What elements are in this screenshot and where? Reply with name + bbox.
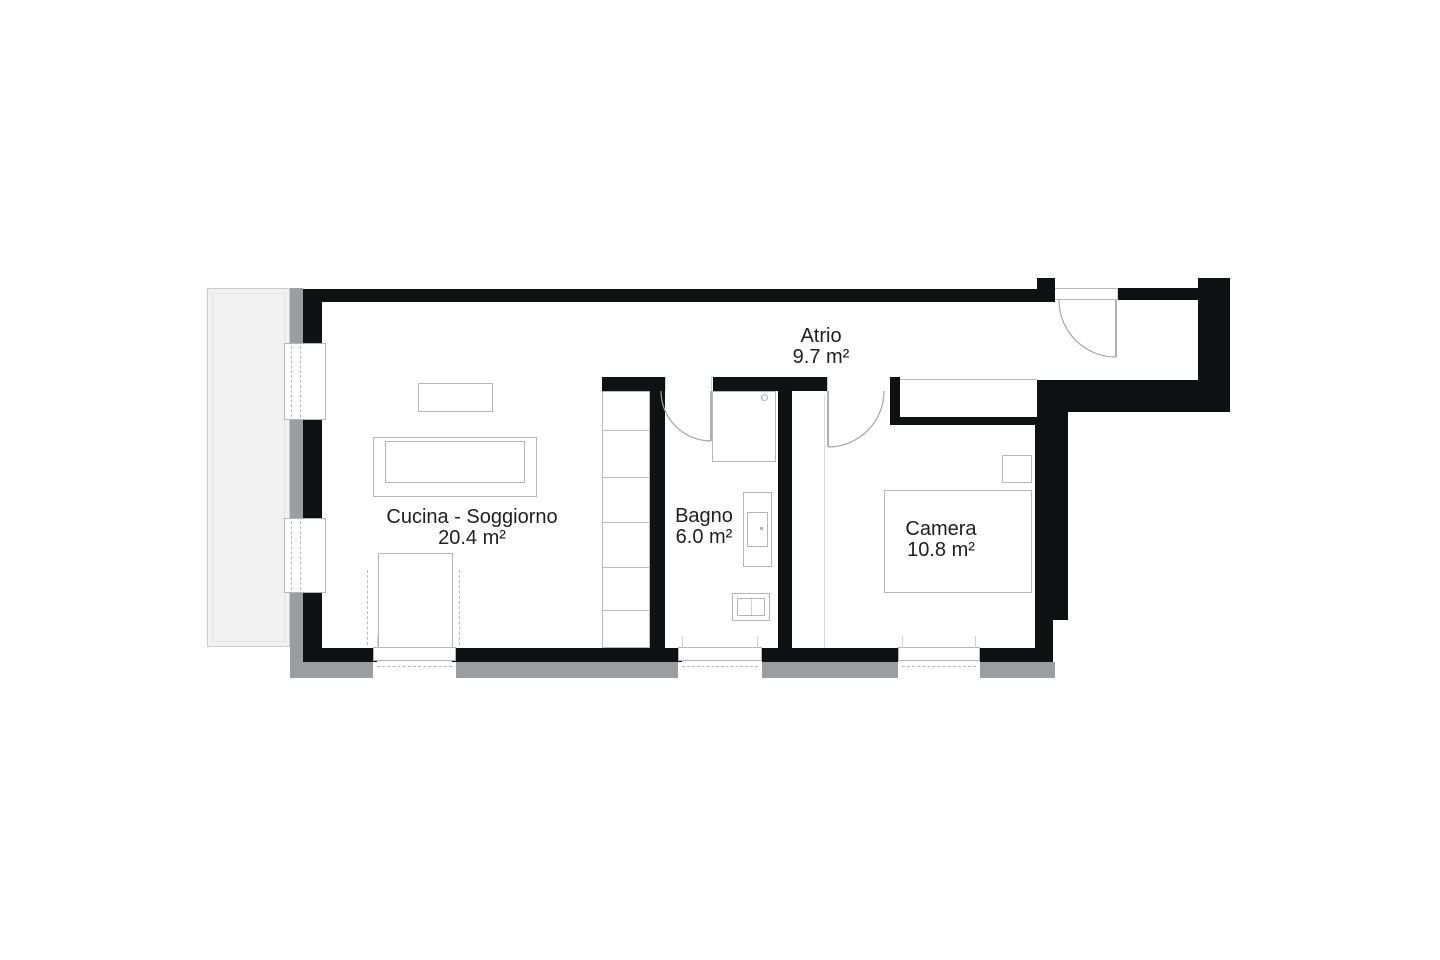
entry-door-arc [1059,300,1116,357]
wall-camera-right-upper [1035,412,1068,620]
room-label-bagno: Bagno 6.0 m² [624,506,784,548]
door-jamb-line [827,377,828,391]
outer-band-bottom [762,662,898,678]
wall-camera-top [900,417,1037,425]
door-jamb-line [665,377,666,391]
wall-left-seg2 [303,420,322,518]
wall-top-stub [1037,278,1055,291]
toilet-line [751,599,752,615]
balcony [207,288,290,647]
wall-right-corner [1198,278,1230,412]
room-name: Camera [841,519,1041,540]
kitchen-dash-line [367,570,368,645]
outer-band-bottom [980,662,1055,678]
wall-bottom-1 [452,648,682,662]
wall-face-line [824,395,825,648]
wall-left-seg1 [303,289,322,343]
wall-top-right [1118,288,1198,300]
window-pane-line [300,521,301,590]
nightstand [1002,455,1032,483]
window-reveal-line [975,636,976,648]
room-label-camera: Camera 10.8 m² [841,519,1041,561]
outer-band-bottom [303,662,373,678]
door-jamb-line [1117,288,1118,300]
hall-niche [900,379,1037,417]
room-name: Bagno [624,506,784,527]
wall-entry-band [1035,380,1198,412]
kitchen-block [378,553,453,648]
window-pane-line [902,666,976,667]
window-pane-line [300,346,301,417]
room-name: Atrio [721,326,921,347]
wall-bagno-top [713,377,827,391]
wall-wardrobe-stub [602,377,665,391]
camera-door-arc [828,391,884,447]
window-reveal-line [682,636,683,648]
wardrobe-shelf-line [603,477,649,478]
window [678,647,762,661]
room-label-atrio: Atrio 9.7 m² [721,326,921,368]
kitchen-dash-line [459,570,460,645]
door-jamb-line [711,377,712,391]
wardrobe-shelf-line [603,567,649,568]
shower [712,391,776,462]
wall-camera-corner-stub [890,377,900,425]
shower-drain [761,394,768,401]
bagno-door-arc [661,391,711,441]
wardrobe-shelf-line [603,430,649,431]
wall-bottom-3 [980,648,1053,662]
wall-left-seg3 [303,593,322,648]
room-area: 10.8 m² [841,540,1041,561]
entry-door-opening [1055,288,1118,300]
window [898,647,980,661]
tv-board [418,383,493,412]
wall-bottom-corner [303,648,377,662]
window-pane-line [377,666,452,667]
room-area: 9.7 m² [721,347,921,368]
room-area: 20.4 m² [352,528,592,549]
room-name: Cucina - Soggiorno [352,507,592,528]
window-reveal-line [902,636,903,648]
window-reveal-line [757,636,758,648]
outer-band-bottom [456,662,678,678]
room-area: 6.0 m² [624,527,784,548]
sofa-seat [385,441,525,483]
window-pane-line [682,666,758,667]
wall-top [303,289,1055,302]
balcony-inner-line [212,293,285,642]
window [373,647,456,661]
window-pane-line [291,521,292,590]
window-pane-line [291,346,292,417]
wall-bottom-2 [762,648,898,662]
wardrobe-shelf-line [603,610,649,611]
room-label-cucina: Cucina - Soggiorno 20.4 m² [352,507,592,549]
floor-plan: Atrio 9.7 m² Cucina - Soggiorno 20.4 m² … [0,0,1440,960]
